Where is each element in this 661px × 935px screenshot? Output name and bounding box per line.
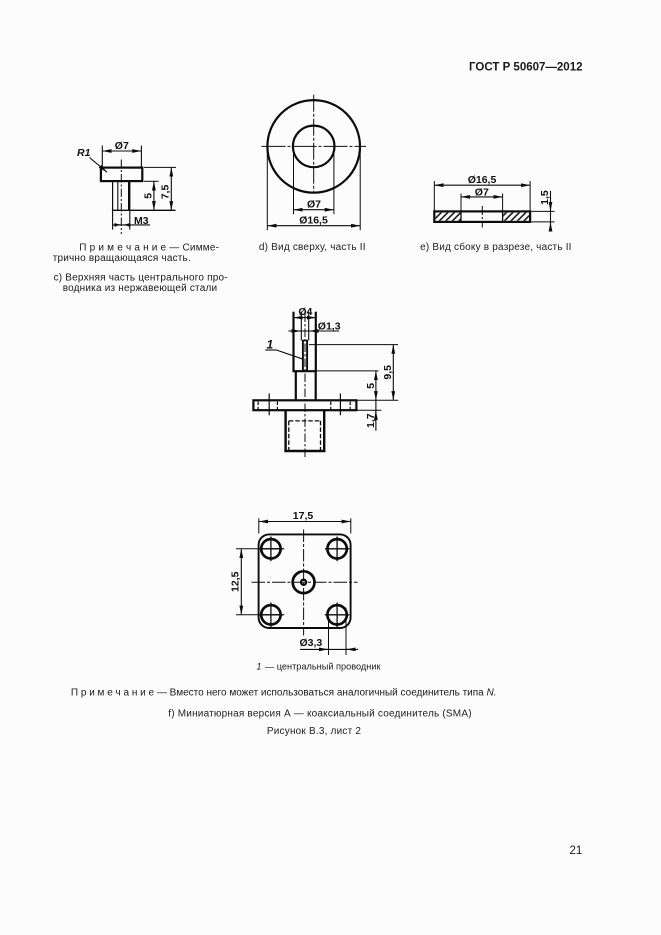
svg-text:17,5: 17,5 xyxy=(293,510,314,522)
svg-text:П р и м е ч а н и е — Симме-: П р и м е ч а н и е — Симме- xyxy=(79,242,219,253)
svg-text:Ø3,3: Ø3,3 xyxy=(300,637,323,649)
svg-text:5: 5 xyxy=(142,193,154,199)
svg-text:Ø7: Ø7 xyxy=(307,199,321,211)
svg-text:Ø1,3: Ø1,3 xyxy=(318,320,341,332)
svg-text:е) Вид сбоку в разрезе, часть: е) Вид сбоку в разрезе, часть II xyxy=(420,241,572,253)
svg-text:M3: M3 xyxy=(134,215,149,227)
svg-text:R1: R1 xyxy=(77,147,91,159)
svg-text:21: 21 xyxy=(570,845,583,857)
svg-text:Рисунок В.3, лист 2: Рисунок В.3, лист 2 xyxy=(267,726,361,737)
svg-text:12,5: 12,5 xyxy=(230,571,242,592)
svg-text:1: 1 xyxy=(256,662,261,672)
svg-text:Ø7: Ø7 xyxy=(115,140,129,152)
svg-text:Ø16,5: Ø16,5 xyxy=(299,215,328,227)
svg-text:1,7: 1,7 xyxy=(365,413,377,428)
svg-text:трично вращающаяся часть.: трично вращающаяся часть. xyxy=(53,253,191,264)
svg-text:d) Вид сверху, часть II: d) Вид сверху, часть II xyxy=(259,242,366,253)
svg-text:Ø16,5: Ø16,5 xyxy=(468,174,497,186)
svg-text:7,5: 7,5 xyxy=(160,185,172,200)
svg-text:— центральный проводник: — центральный проводник xyxy=(265,662,381,672)
svg-text:5: 5 xyxy=(365,383,377,389)
svg-text:ГОСТ Р 50607—2012: ГОСТ Р 50607—2012 xyxy=(469,62,582,74)
svg-text:Ø7: Ø7 xyxy=(475,186,489,198)
svg-text:водника из нержавеющей стали: водника из нержавеющей стали xyxy=(63,283,218,294)
svg-text:П р и м е ч а н и е — Вместо н: П р и м е ч а н и е — Вместо него может … xyxy=(71,687,497,698)
svg-text:9,5: 9,5 xyxy=(382,365,394,380)
svg-text:f) Миниатюрная версия А — коак: f) Миниатюрная версия А — коаксиальный с… xyxy=(168,708,471,719)
svg-text:1,5: 1,5 xyxy=(539,190,551,205)
